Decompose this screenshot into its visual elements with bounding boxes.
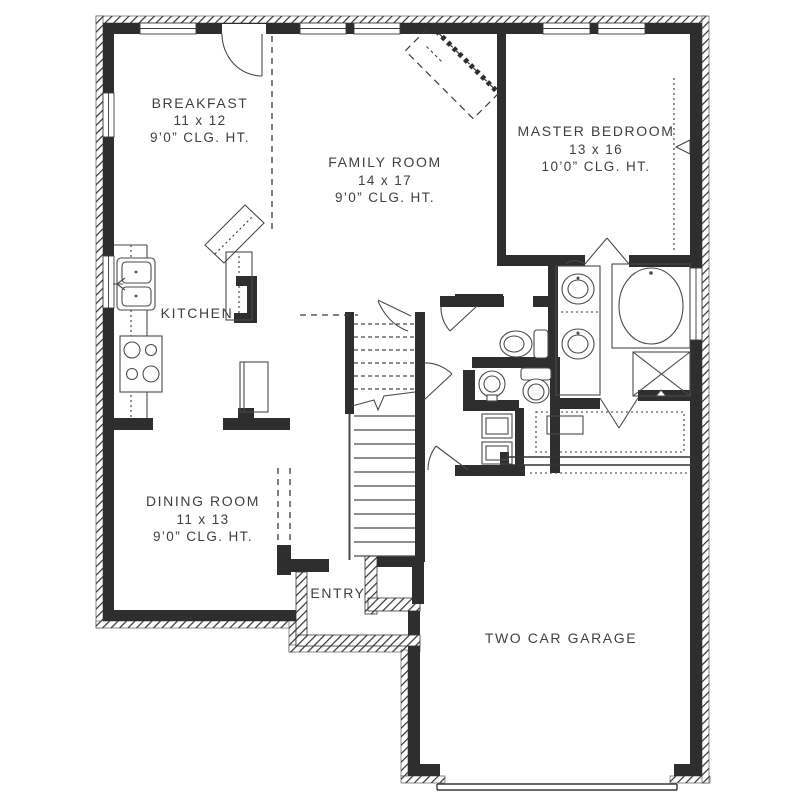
svg-text:TWO CAR GARAGE: TWO CAR GARAGE <box>485 630 637 646</box>
utility-room <box>505 412 697 473</box>
door-arc-icon <box>424 363 452 400</box>
door-arc-icon <box>441 306 477 331</box>
svg-text:ENTRY: ENTRY <box>310 585 365 601</box>
svg-text:MASTER BEDROOM: MASTER BEDROOM <box>518 123 675 139</box>
room-label-master-bedroom: MASTER BEDROOM 13 x 16 10’0” CLG. HT. <box>518 123 675 174</box>
kitchen-sink-icon <box>113 258 155 310</box>
room-label-entry: ENTRY <box>310 585 365 601</box>
room-label-breakfast: BREAKFAST 11 x 12 9’0” CLG. HT. <box>150 95 250 145</box>
svg-text:10’0” CLG. HT.: 10’0” CLG. HT. <box>542 159 651 174</box>
svg-text:DINING ROOM: DINING ROOM <box>146 493 260 509</box>
svg-text:13 x 16: 13 x 16 <box>569 142 623 157</box>
room-label-kitchen: KITCHEN <box>161 305 234 321</box>
svg-text:9’0” CLG. HT.: 9’0” CLG. HT. <box>150 130 250 145</box>
staircase <box>350 324 416 560</box>
svg-text:FAMILY ROOM: FAMILY ROOM <box>328 154 442 170</box>
room-label-dining-room: DINING ROOM 11 x 13 9’0” CLG. HT. <box>146 493 260 544</box>
cooktop-icon <box>120 336 162 392</box>
door-arc-icon <box>378 300 411 331</box>
pedestal-sink-icon <box>479 371 505 401</box>
svg-text:BREAKFAST: BREAKFAST <box>152 95 249 111</box>
toilet-icon <box>500 330 548 358</box>
svg-text:14 x 17: 14 x 17 <box>358 173 412 188</box>
room-label-family-room: FAMILY ROOM 14 x 17 9’0” CLG. HT. <box>328 154 442 205</box>
svg-text:11 x 12: 11 x 12 <box>173 113 226 128</box>
svg-text:KITCHEN: KITCHEN <box>161 305 234 321</box>
corner-media-niche <box>405 25 498 118</box>
double-vanity-icon <box>556 266 600 395</box>
bathtub-icon <box>612 264 690 348</box>
svg-text:9’0” CLG. HT.: 9’0” CLG. HT. <box>153 529 253 544</box>
double-door-icon <box>600 398 638 428</box>
double-door-icon <box>566 238 629 264</box>
wall-marker-icon <box>676 140 690 154</box>
room-label-garage: TWO CAR GARAGE <box>485 630 637 646</box>
garage-door-icon <box>437 784 677 790</box>
toilet-icon <box>521 368 551 403</box>
svg-text:9’0” CLG. HT.: 9’0” CLG. HT. <box>335 190 435 205</box>
floor-plan-canvas: BREAKFAST 11 x 12 9’0” CLG. HT. FAMILY R… <box>0 0 810 810</box>
svg-text:11 x 13: 11 x 13 <box>176 512 229 527</box>
floor-plan: BREAKFAST 11 x 12 9’0” CLG. HT. FAMILY R… <box>0 0 810 810</box>
door-arc-icon <box>222 24 266 76</box>
shower-icon <box>633 352 690 396</box>
